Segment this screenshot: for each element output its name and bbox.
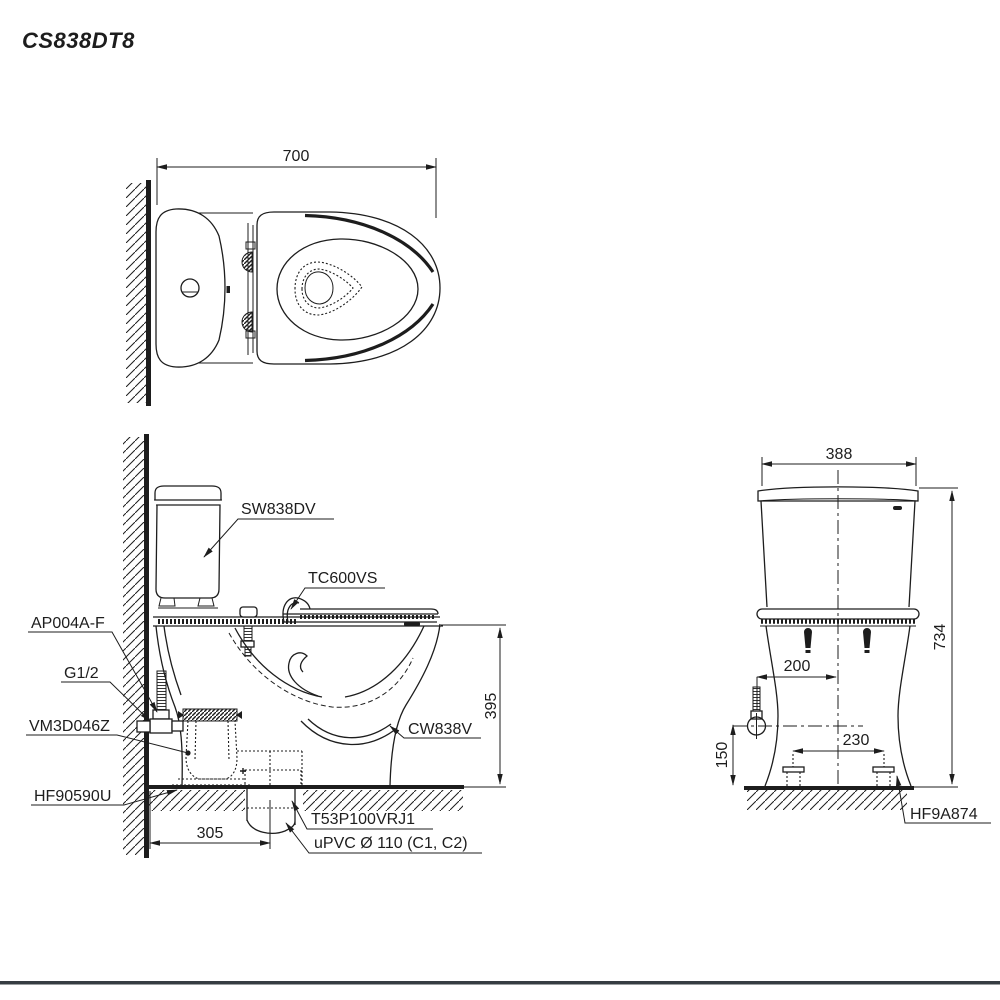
leader-sw838dv (204, 519, 334, 557)
front-seat-bolt-right (863, 628, 871, 653)
wall-hatch-top-view (126, 183, 146, 403)
hinge-screw-bottom (242, 312, 252, 332)
label-hf90590u: HF90590U (34, 788, 111, 805)
floor-hatch-right (303, 790, 463, 811)
flush-valve-detail-dotted (172, 721, 252, 785)
front-floor-bolt-right (873, 767, 894, 772)
drain-pipe (247, 789, 295, 833)
dim-395-text: 395 (483, 693, 500, 720)
bowl-inner-dashed (229, 633, 413, 707)
wall-hatch-side-view (123, 437, 144, 855)
cistern-body (156, 505, 220, 598)
drain-flange-dotted (245, 770, 301, 787)
front-floor-bolt-left (783, 767, 804, 772)
wall-supply-stub (137, 721, 150, 732)
front-floor-bolt-left-hidden (787, 772, 800, 786)
label-upvc-pipe: uPVC Ø 110 (C1, C2) (314, 835, 468, 852)
supply-nut (153, 710, 169, 719)
cistern-lever-mark (227, 286, 231, 293)
page-title: CS838DT8 (22, 28, 135, 53)
dim-305-text: 305 (197, 825, 224, 842)
front-floor-bolt-right-hidden (877, 772, 890, 786)
dim-150-text: 150 (714, 742, 731, 769)
flush-button (181, 279, 199, 297)
supply-valve-body (150, 719, 172, 733)
floor-line-side-view (146, 785, 464, 789)
leader-vm3d046z (26, 735, 188, 753)
seat-hinge-plate (248, 223, 253, 355)
floor-line-front-view (744, 786, 914, 790)
trap-seal-curves (301, 719, 397, 744)
wall-line-side-view (144, 434, 149, 858)
side-view: 395 305 SW838DV TC600VS AP004A-F G1/2 VM… (26, 434, 506, 858)
front-seat-bolt-left (804, 628, 812, 653)
flush-valve-flange (183, 709, 237, 721)
technical-drawing: CS838DT8 700 (0, 0, 1000, 1000)
dim-200-text: 200 (784, 658, 811, 675)
supply-threaded-rod (157, 671, 166, 712)
label-vm3d046z: VM3D046Z (29, 718, 110, 735)
label-sw838dv: SW838DV (241, 501, 316, 518)
label-cw838v: CW838V (408, 721, 472, 738)
top-view: 700 (126, 148, 440, 406)
cistern-base (158, 598, 218, 608)
hinge-bolt-shank (244, 626, 252, 641)
cistern-lid (155, 486, 221, 500)
front-view: 388 734 200 230 150 HF9A874 (714, 446, 991, 823)
seat-bumper (404, 622, 420, 626)
leader-vm3d046z-dot (185, 750, 190, 755)
bowl-outline (156, 624, 440, 786)
label-hf9a874: HF9A874 (910, 806, 978, 823)
hinge-screw-top (242, 252, 252, 272)
dim-388-text: 388 (826, 446, 853, 463)
drawing-page: CS838DT8 700 (0, 0, 1000, 1000)
bowl-funnel (235, 626, 424, 697)
label-g1-2: G1/2 (64, 665, 99, 682)
hinge-bolt-cap (240, 607, 257, 617)
supply-connector (172, 721, 183, 731)
outlet-elbow-dotted (237, 751, 302, 786)
leader-tc600vs (291, 588, 385, 609)
wall-line-top-view (146, 180, 151, 406)
label-ap004a-f: AP004A-F (31, 615, 105, 632)
toto-logo (893, 506, 902, 510)
seat-lid-outline (257, 212, 440, 364)
dim-734-text: 734 (932, 624, 949, 651)
cistern-lid-lip (154, 500, 222, 505)
floor-hatch-left (149, 790, 245, 811)
dim-700-text: 700 (283, 148, 310, 165)
trapway-hook (289, 653, 318, 696)
footer-bar (0, 981, 1000, 985)
flush-valve-body-dotted (186, 721, 237, 779)
floor-hatch-front (747, 790, 907, 810)
label-t53p100vrj1: T53P100VRJ1 (311, 811, 415, 828)
dim-230-text: 230 (843, 732, 870, 749)
label-tc600vs: TC600VS (308, 570, 377, 587)
